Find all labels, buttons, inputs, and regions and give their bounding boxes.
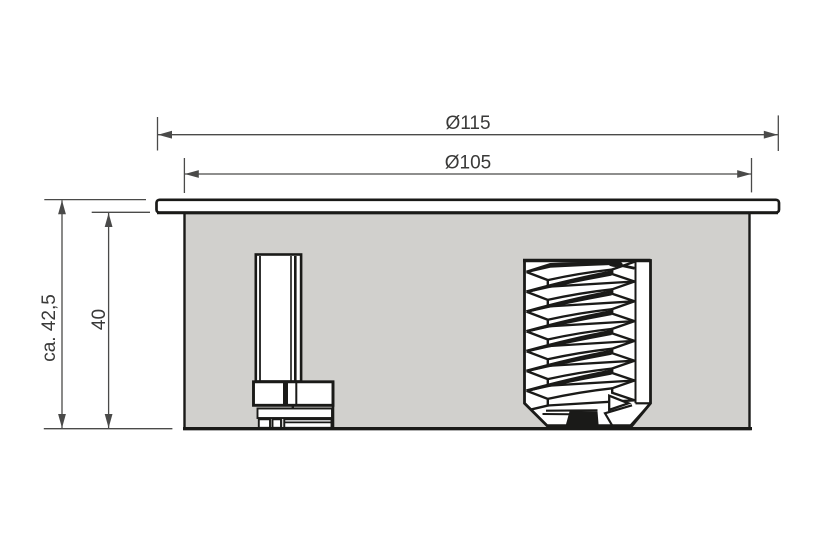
svg-text:Ø105: Ø105 [445,153,491,174]
svg-text:40: 40 [89,309,110,330]
svg-text:Ø115: Ø115 [445,113,490,134]
svg-text:ca. 42,5: ca. 42,5 [39,294,60,362]
